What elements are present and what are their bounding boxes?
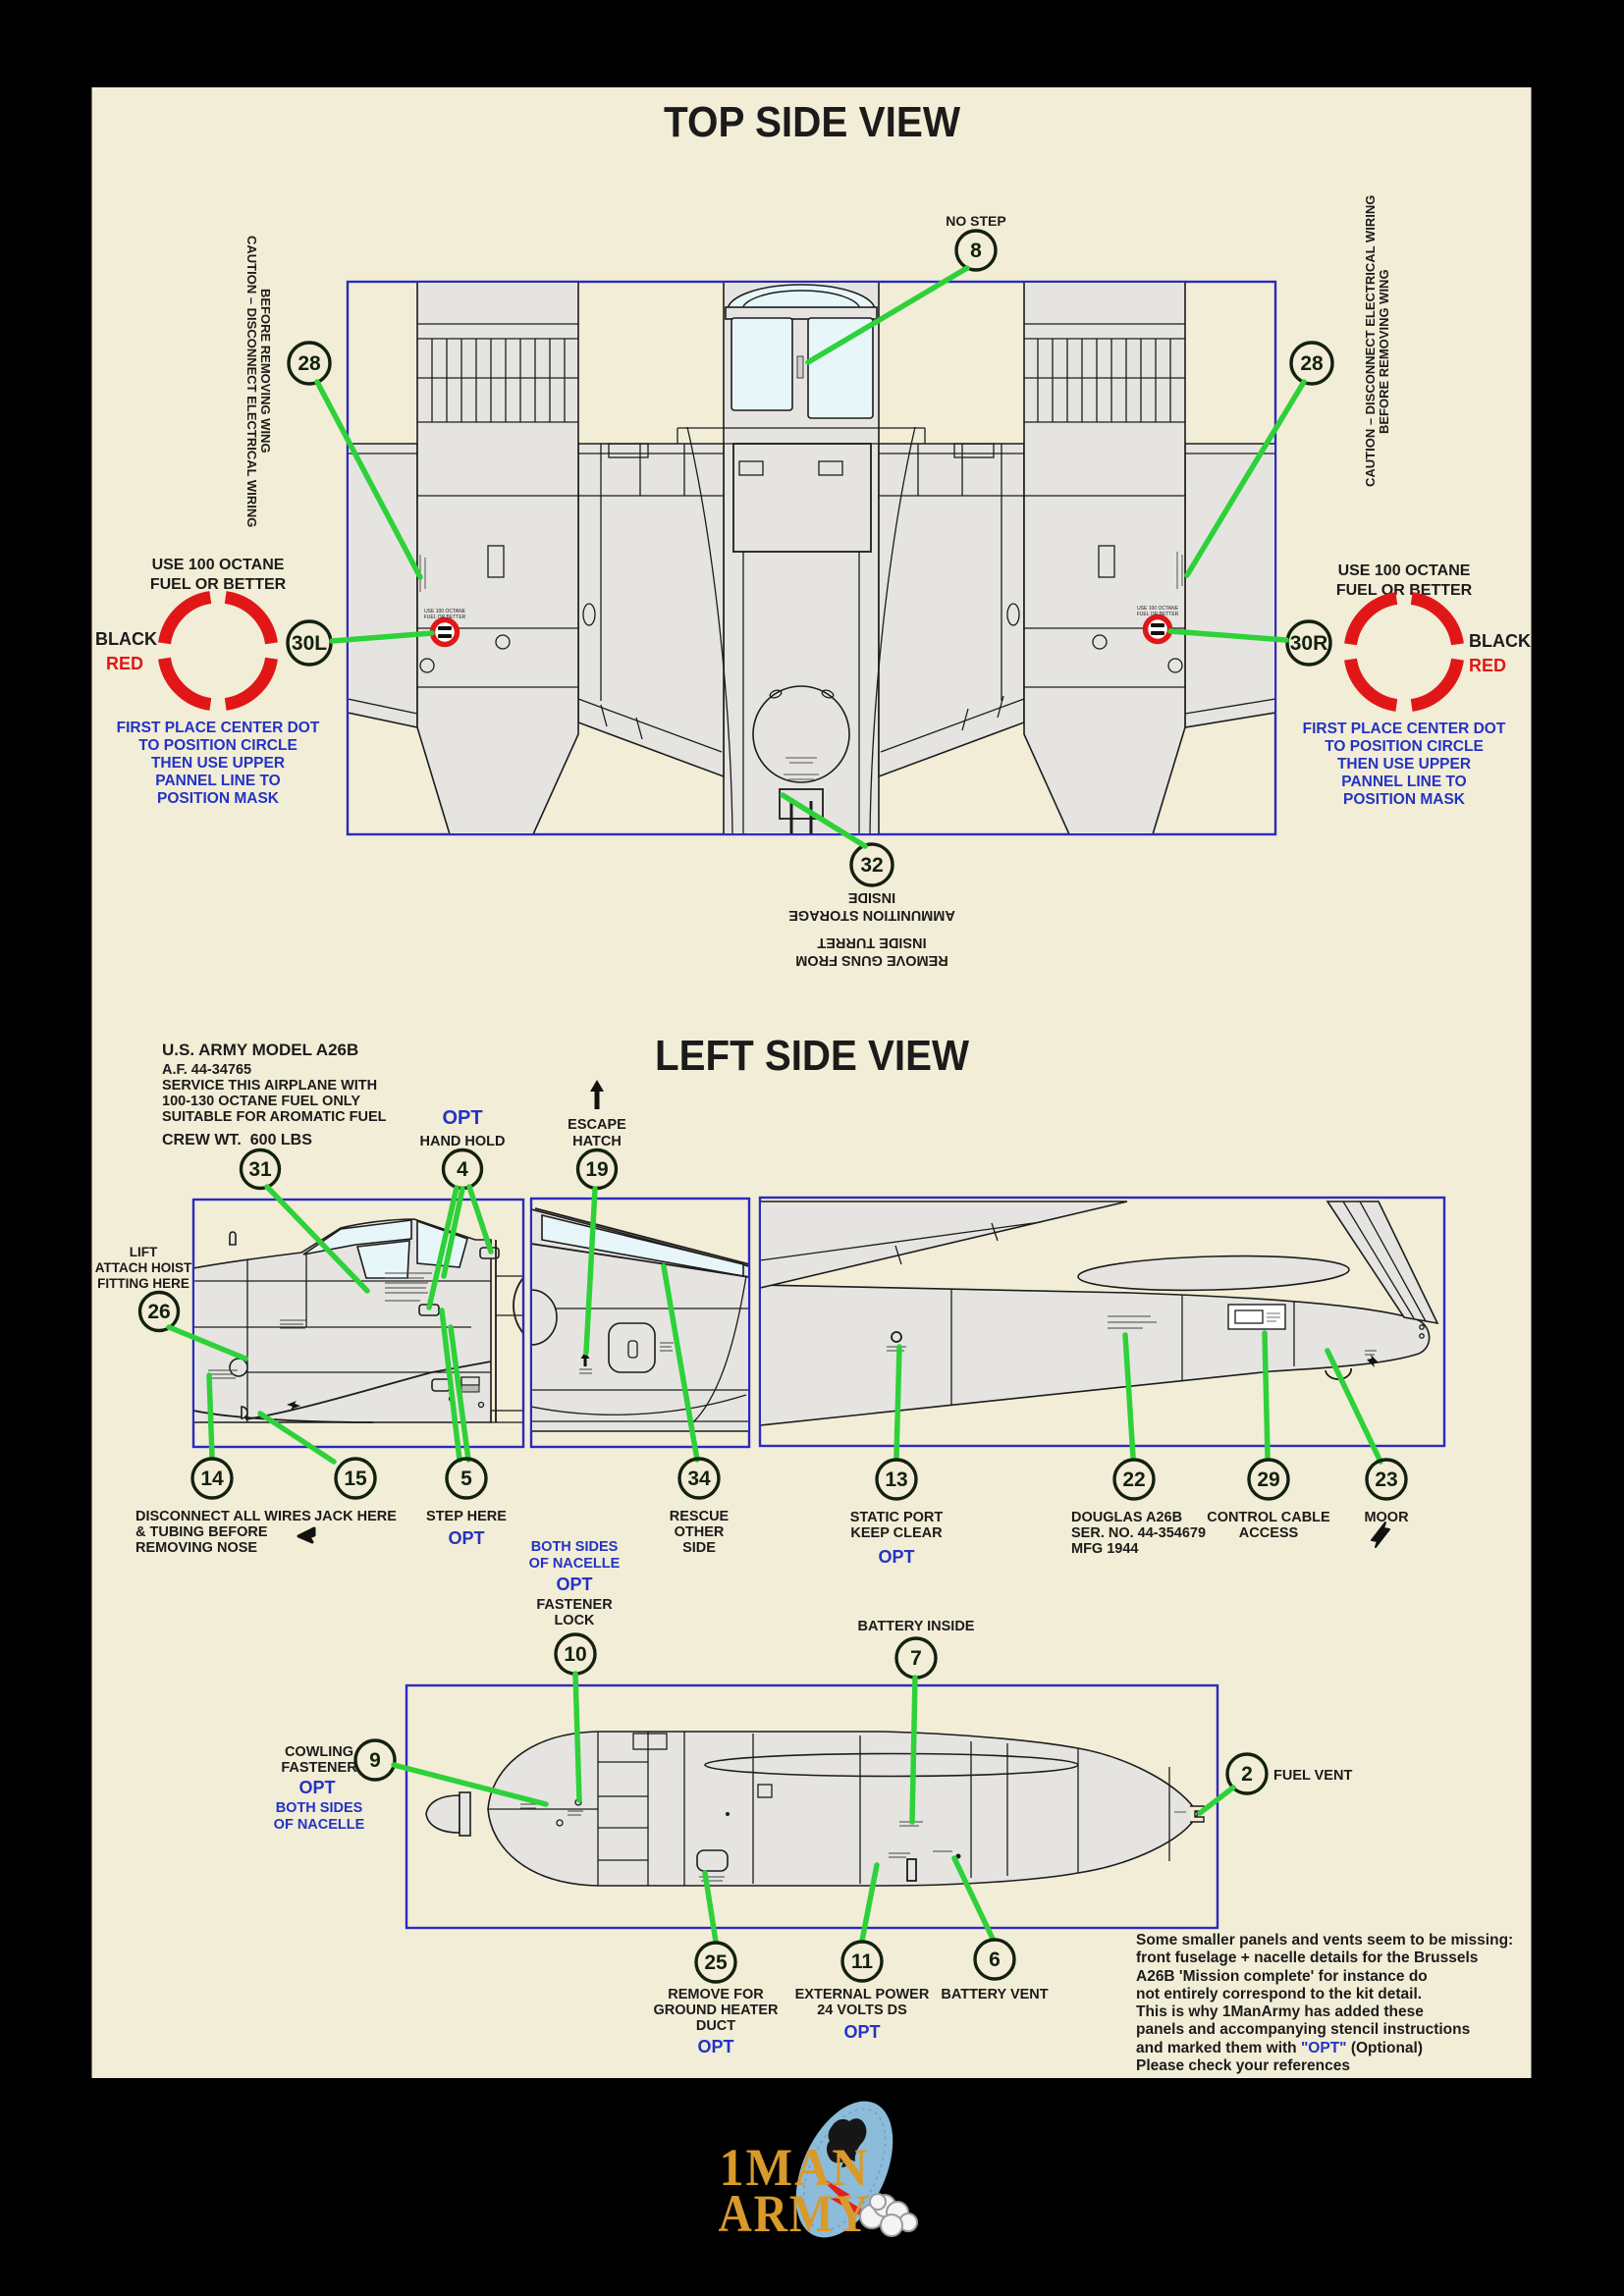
svg-text:4: 4: [457, 1158, 468, 1181]
svg-text:OPT: OPT: [448, 1528, 484, 1548]
svg-text:FIRST PLACE CENTER DOT: FIRST PLACE CENTER DOT: [117, 720, 320, 736]
svg-text:LOCK: LOCK: [554, 1613, 595, 1629]
svg-text:10: 10: [564, 1643, 586, 1666]
svg-text:RED: RED: [1469, 656, 1506, 675]
svg-text:26: 26: [147, 1301, 170, 1323]
svg-text:This is why 1ManArmy has added: This is why 1ManArmy has added these: [1136, 2003, 1424, 2020]
svg-text:THEN USE UPPER: THEN USE UPPER: [151, 755, 285, 772]
svg-text:POSITION MASK: POSITION MASK: [157, 790, 280, 807]
svg-text:OTHER: OTHER: [675, 1524, 725, 1540]
svg-text:HATCH: HATCH: [572, 1134, 622, 1149]
svg-text:BATTERY VENT: BATTERY VENT: [941, 1987, 1048, 2002]
svg-text:front fuselage + nacelle detai: front fuselage + nacelle details for the…: [1136, 1949, 1478, 1966]
svg-text:OF NACELLE: OF NACELLE: [529, 1556, 621, 1572]
svg-text:ESCAPE: ESCAPE: [568, 1117, 626, 1133]
svg-text:29: 29: [1257, 1468, 1279, 1491]
svg-text:SERVICE THIS AIRPLANE WITH: SERVICE THIS AIRPLANE WITH: [162, 1078, 377, 1094]
svg-text:STATIC PORT: STATIC PORT: [850, 1510, 944, 1525]
svg-text:DUCT: DUCT: [696, 2018, 735, 2034]
svg-text:JACK HERE: JACK HERE: [314, 1509, 397, 1524]
svg-text:OPT: OPT: [878, 1547, 914, 1567]
svg-text:SIDE: SIDE: [682, 1540, 716, 1556]
svg-text:32: 32: [860, 854, 883, 877]
svg-text:ACCESS: ACCESS: [1239, 1525, 1299, 1541]
svg-text:TO POSITION CIRCLE: TO POSITION CIRCLE: [1325, 738, 1484, 755]
svg-text:GROUND HEATER: GROUND HEATER: [653, 2002, 779, 2018]
svg-text:ARMY: ARMY: [719, 2184, 871, 2243]
svg-text:SUITABLE FOR AROMATIC FUEL: SUITABLE FOR AROMATIC FUEL: [162, 1109, 387, 1125]
svg-text:A.F. 44-34765: A.F. 44-34765: [162, 1062, 251, 1078]
svg-text:30R: 30R: [1290, 632, 1328, 655]
svg-text:6: 6: [989, 1949, 1001, 1971]
svg-text:23: 23: [1375, 1468, 1397, 1491]
svg-text:& TUBING BEFORE: & TUBING BEFORE: [135, 1524, 268, 1540]
svg-text:30L: 30L: [292, 632, 327, 655]
svg-text:24 VOLTS DS: 24 VOLTS DS: [817, 2002, 907, 2018]
svg-text:RED: RED: [106, 654, 143, 673]
svg-text:FIRST PLACE CENTER DOT: FIRST PLACE CENTER DOT: [1303, 721, 1506, 737]
svg-text:BOTH SIDES: BOTH SIDES: [276, 1800, 363, 1816]
svg-text:STEP HERE: STEP HERE: [426, 1509, 507, 1524]
svg-text:BOTH SIDES: BOTH SIDES: [531, 1539, 619, 1555]
svg-text:22: 22: [1122, 1468, 1145, 1491]
svg-text:14: 14: [200, 1468, 224, 1490]
svg-text:CREW WT. 600 LBS: CREW WT. 600 LBS: [162, 1132, 312, 1148]
svg-text:2: 2: [1241, 1763, 1253, 1786]
svg-text:15: 15: [344, 1468, 367, 1490]
svg-text:BLACK: BLACK: [1469, 631, 1531, 651]
svg-text:POSITION MASK: POSITION MASK: [1343, 791, 1466, 808]
svg-text:8: 8: [970, 240, 982, 262]
svg-text:CAUTION – DISCONNECT ELECTRICA: CAUTION – DISCONNECT ELECTRICAL WIRING: [1363, 195, 1378, 487]
svg-text:28: 28: [298, 352, 321, 375]
svg-text:OPT: OPT: [298, 1778, 335, 1797]
svg-text:OPT: OPT: [697, 2037, 733, 2056]
svg-text:MOOR: MOOR: [1364, 1510, 1409, 1525]
svg-text:TOP SIDE VIEW: TOP SIDE VIEW: [664, 98, 960, 146]
svg-text:USE 100 OCTANE: USE 100 OCTANE: [1338, 562, 1471, 579]
svg-text:A26B 'Mission complete' for in: A26B 'Mission complete' for instance do: [1136, 1968, 1428, 1985]
svg-text:5: 5: [460, 1468, 472, 1490]
svg-text:FUEL OR BETTER: FUEL OR BETTER: [1336, 582, 1473, 599]
svg-text:FASTENER: FASTENER: [281, 1760, 357, 1776]
svg-text:7: 7: [910, 1647, 922, 1670]
svg-text:OPT: OPT: [556, 1575, 592, 1594]
svg-text:FUEL VENT: FUEL VENT: [1273, 1768, 1352, 1784]
svg-text:OPT: OPT: [442, 1107, 482, 1129]
svg-text:BLACK: BLACK: [95, 629, 157, 649]
svg-text:28: 28: [1300, 352, 1324, 375]
svg-text:34: 34: [687, 1468, 711, 1490]
svg-text:REMOVE FOR: REMOVE FOR: [668, 1987, 764, 2002]
svg-text:BEFORE REMOVING WING: BEFORE REMOVING WING: [258, 289, 273, 454]
svg-text:TO POSITION CIRCLE: TO POSITION CIRCLE: [138, 737, 298, 754]
svg-text:OPT: OPT: [843, 2022, 880, 2042]
svg-text:FUEL OR BETTER: FUEL OR BETTER: [150, 576, 287, 593]
svg-text:11: 11: [851, 1950, 874, 1973]
svg-text:FUEL OR BETTER: FUEL OR BETTER: [1137, 612, 1179, 617]
svg-text:BEFORE REMOVING WING: BEFORE REMOVING WING: [1377, 269, 1391, 434]
svg-text:USE 100 OCTANE: USE 100 OCTANE: [152, 557, 285, 573]
svg-text:31: 31: [248, 1158, 272, 1181]
svg-text:NO STEP: NO STEP: [946, 213, 1005, 229]
svg-text:INSIDE TURRET: INSIDE TURRET: [817, 934, 926, 950]
svg-text:and marked them with "OPT" (Op: and marked them with "OPT" (Optional): [1136, 2040, 1423, 2056]
svg-text:RESCUE: RESCUE: [670, 1509, 730, 1524]
svg-text:CONTROL CABLE: CONTROL CABLE: [1207, 1510, 1330, 1525]
svg-text:DOUGLAS A26B: DOUGLAS A26B: [1071, 1510, 1182, 1525]
svg-text:LEFT SIDE VIEW: LEFT SIDE VIEW: [655, 1032, 969, 1080]
svg-text:FITTING HERE: FITTING HERE: [97, 1276, 189, 1291]
svg-text:U.S. ARMY MODEL A26B: U.S. ARMY MODEL A26B: [162, 1041, 358, 1059]
svg-text:Please check your references: Please check your references: [1136, 2057, 1350, 2074]
svg-text:19: 19: [585, 1158, 608, 1181]
svg-text:SER. NO. 44-354679: SER. NO. 44-354679: [1071, 1525, 1206, 1541]
svg-text:CAUTION – DISCONNECT ELECTRICA: CAUTION – DISCONNECT ELECTRICAL WIRING: [244, 236, 259, 527]
svg-text:panels and accompanying stenci: panels and accompanying stencil instruct…: [1136, 2021, 1470, 2038]
svg-text:not entirely correspond to the: not entirely correspond to the kit detai…: [1136, 1986, 1422, 2002]
svg-text:COWLING: COWLING: [285, 1744, 353, 1760]
svg-text:INSIDE: INSIDE: [848, 889, 896, 905]
svg-text:EXTERNAL POWER: EXTERNAL POWER: [795, 1987, 930, 2002]
svg-text:THEN USE UPPER: THEN USE UPPER: [1337, 756, 1471, 773]
svg-text:DISCONNECT ALL WIRES: DISCONNECT ALL WIRES: [135, 1509, 311, 1524]
svg-text:100-130 OCTANE FUEL ONLY: 100-130 OCTANE FUEL ONLY: [162, 1094, 360, 1109]
svg-text:13: 13: [885, 1468, 907, 1491]
svg-text:Some smaller panels and vents: Some smaller panels and vents seem to be…: [1136, 1932, 1513, 1949]
svg-text:ATTACH HOIST: ATTACH HOIST: [95, 1260, 192, 1275]
svg-text:BATTERY INSIDE: BATTERY INSIDE: [858, 1619, 975, 1634]
svg-text:REMOVING NOSE: REMOVING NOSE: [135, 1540, 257, 1556]
svg-text:LIFT: LIFT: [130, 1245, 158, 1259]
svg-text:PANNEL LINE TO: PANNEL LINE TO: [155, 773, 280, 789]
svg-text:PANNEL LINE TO: PANNEL LINE TO: [1341, 774, 1466, 790]
svg-text:FUEL OR BETTER: FUEL OR BETTER: [424, 614, 466, 620]
svg-text:AMMUNITION STORAGE: AMMUNITION STORAGE: [788, 907, 955, 923]
svg-text:REMOVE GUNS FROM: REMOVE GUNS FROM: [795, 952, 947, 968]
svg-text:25: 25: [704, 1951, 728, 1974]
svg-text:HAND HOLD: HAND HOLD: [420, 1134, 506, 1149]
svg-text:MFG 1944: MFG 1944: [1071, 1541, 1139, 1557]
svg-text:FASTENER: FASTENER: [536, 1597, 613, 1613]
svg-text:KEEP CLEAR: KEEP CLEAR: [850, 1525, 943, 1541]
svg-text:OF NACELLE: OF NACELLE: [274, 1817, 365, 1833]
svg-text:9: 9: [369, 1749, 381, 1772]
